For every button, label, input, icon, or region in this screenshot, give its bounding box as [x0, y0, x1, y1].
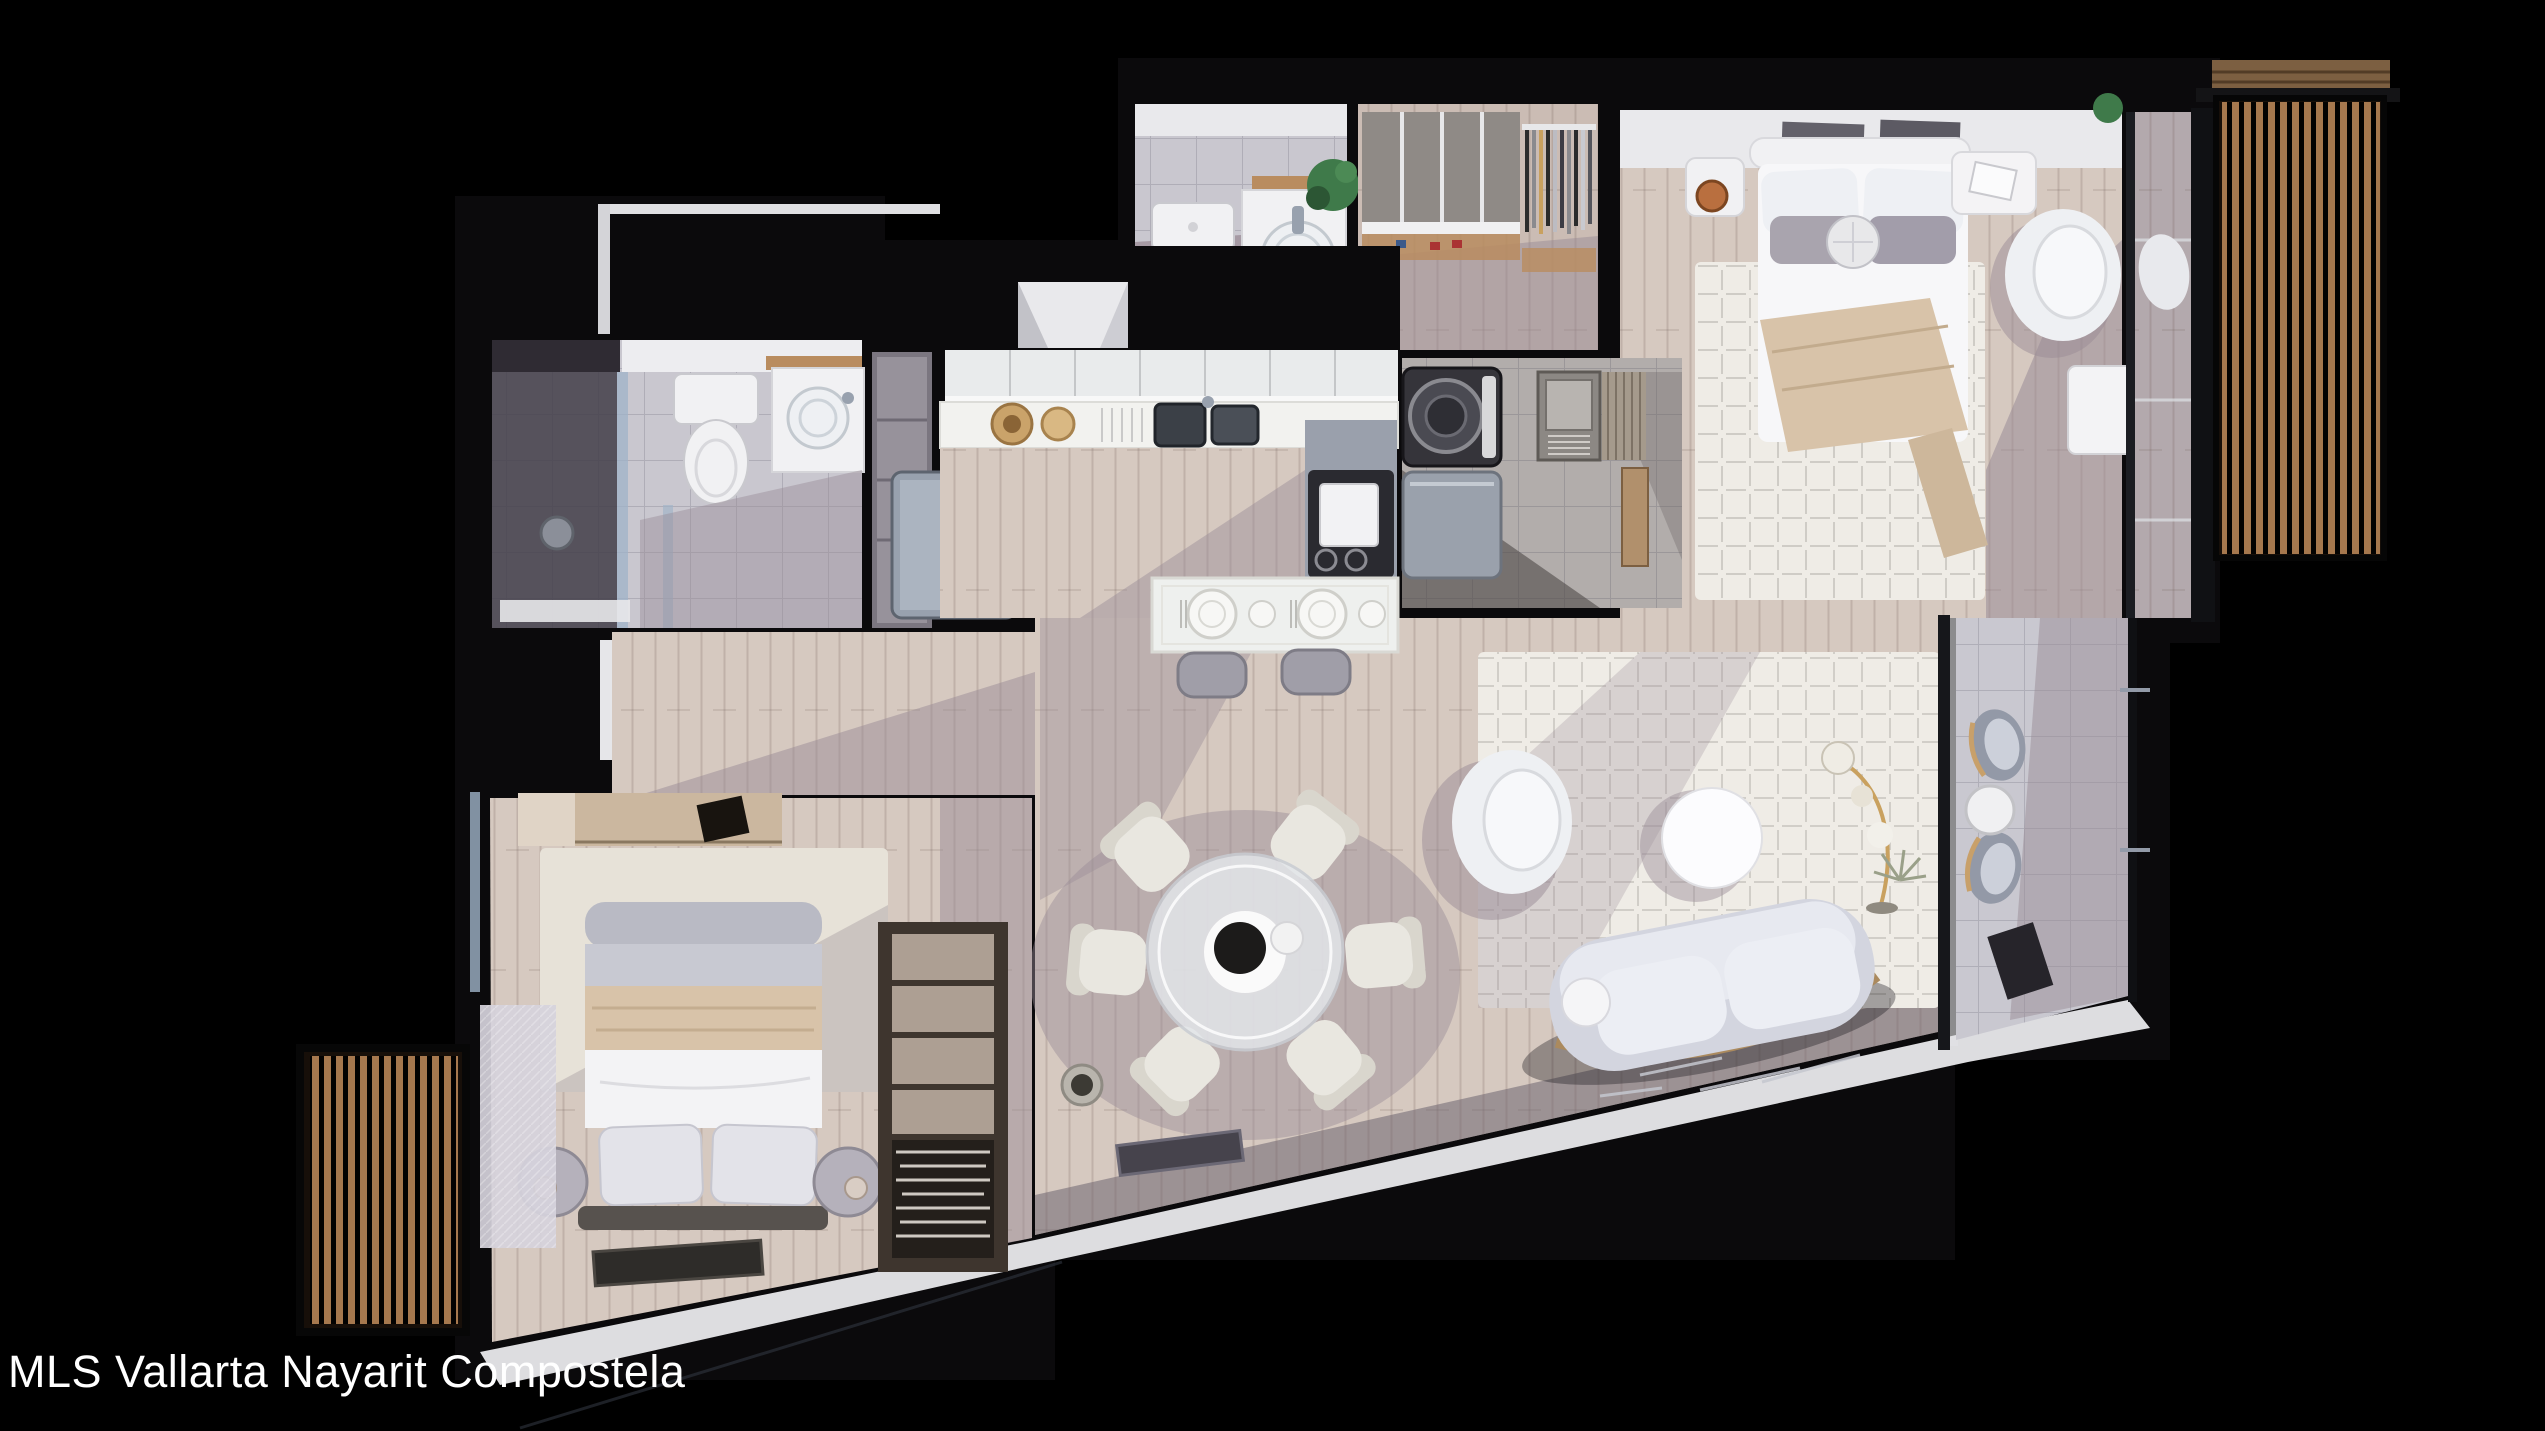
- nightstand-left: [1686, 158, 1744, 216]
- dryer: [1403, 472, 1501, 578]
- nightstand-right: [1952, 152, 2036, 214]
- master-bed: [578, 902, 828, 1230]
- dining-chair: [1343, 915, 1427, 994]
- master-bedroom: [470, 792, 1032, 1342]
- bedroom-2: [1620, 93, 2134, 618]
- headboard: [578, 1206, 828, 1230]
- bedroom2-balcony: [2126, 108, 2215, 622]
- bedroom-window: [470, 792, 480, 992]
- sheer-curtain: [480, 1005, 556, 1248]
- patio-side-table: [1966, 786, 2014, 834]
- watermark: MLS Vallarta Nayarit Compostela: [8, 1346, 685, 1398]
- laundry-room: [1402, 358, 1682, 608]
- dining-table: [1147, 854, 1343, 1050]
- dining-chair: [1065, 922, 1149, 1001]
- corner-plant: [2093, 93, 2123, 123]
- floorplan-svg: [0, 0, 2545, 1431]
- bar-stool: [1282, 650, 1350, 694]
- washing-machine: [1403, 368, 1501, 466]
- slat-screen-right: [2196, 60, 2400, 558]
- shower-head: [541, 517, 573, 549]
- drying-rack: [1602, 372, 1646, 460]
- round-nightstand: [814, 1148, 882, 1216]
- upper-cabinets: [945, 350, 1398, 404]
- laundry-door: [1622, 468, 1648, 566]
- shower-glass: [617, 372, 628, 628]
- slat-screen-left: [300, 1048, 466, 1332]
- copper-lamp: [1697, 181, 1727, 211]
- bedroom-desk: [518, 793, 782, 846]
- floorplan-render: MLS Vallarta Nayarit Compostela: [0, 0, 2545, 1431]
- towel-basket: [892, 1140, 994, 1258]
- media-cabinet: [2068, 366, 2134, 454]
- pillow: [711, 1124, 818, 1206]
- entry-nook: [1018, 282, 1128, 348]
- living-balcony: [1938, 615, 2150, 1050]
- wardrobe-shelf: [878, 922, 1008, 1272]
- closet-cabinets: [1362, 112, 1520, 260]
- pillow: [599, 1124, 704, 1206]
- vanity-master: [766, 356, 864, 472]
- decor-bowl-2: [1042, 408, 1074, 440]
- cooktop-column: [1305, 420, 1397, 580]
- bar-stool: [1178, 653, 1246, 697]
- utility-sink: [1538, 372, 1600, 460]
- glass-railing: [2128, 618, 2137, 1002]
- bathroom-door: [600, 640, 612, 760]
